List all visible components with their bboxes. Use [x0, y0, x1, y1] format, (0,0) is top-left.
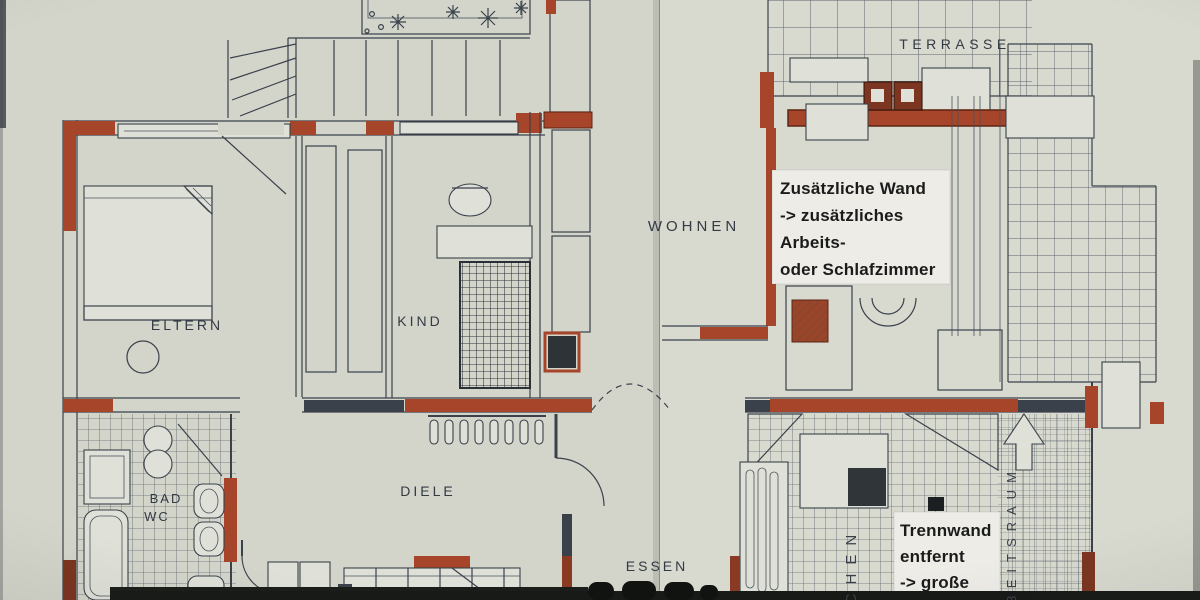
note1-line2: -> zusätzliches: [780, 206, 903, 225]
note1-line3: Arbeits-: [780, 233, 846, 252]
photo-edge-right: [1193, 60, 1200, 600]
basin: [449, 184, 491, 216]
note2-line3: -> große: [900, 573, 969, 592]
label-wohnen: WOHNEN: [648, 218, 740, 235]
kitchen-fixture: [848, 468, 886, 506]
note2-line2: entfernt: [900, 547, 965, 566]
paper-fold: [653, 0, 660, 600]
rug: [460, 262, 530, 388]
label-terrasse: TERRASSE: [899, 36, 1010, 52]
label-kochen: KOCHEN: [843, 526, 860, 600]
bathroom: [78, 414, 237, 600]
removed-wall-marked-red: [770, 399, 1018, 412]
desk: [437, 226, 532, 258]
label-bad: BAD: [150, 491, 183, 506]
window-kind: [400, 122, 518, 134]
label-essen: ESSEN: [626, 558, 688, 574]
annotation-note-1: Zusätzliche Wand -> zusätzliches Arbeits…: [772, 170, 950, 284]
terrace-step: [790, 58, 868, 82]
floor-plan-photo: Zusätzliche Wand -> zusätzliches Arbeits…: [0, 0, 1200, 600]
label-diele: DIELE: [400, 483, 455, 499]
bed: [84, 186, 212, 320]
terrace-door: [1006, 96, 1094, 138]
door-leaf: [1102, 362, 1140, 428]
note2-line1: Trennwand: [900, 521, 992, 540]
floor-plan-drawing: Zusätzliche Wand -> zusätzliches Arbeits…: [0, 0, 1200, 600]
annotation-note-2: Trennwand entfernt -> große Küche: [894, 512, 1000, 600]
note1-line4: oder Schlafzimmer: [780, 260, 936, 279]
note1-line1: Zusätzliche Wand: [780, 179, 926, 198]
wall-accent: [63, 121, 76, 231]
tall-cupboard: [740, 462, 788, 600]
label-wc: WC: [144, 509, 170, 524]
label-eltern: ELTERN: [151, 317, 223, 333]
shower: [84, 450, 130, 504]
label-arbeitsraum: ARBEITSRAUM: [1004, 465, 1019, 600]
label-kind: KIND: [397, 313, 442, 329]
